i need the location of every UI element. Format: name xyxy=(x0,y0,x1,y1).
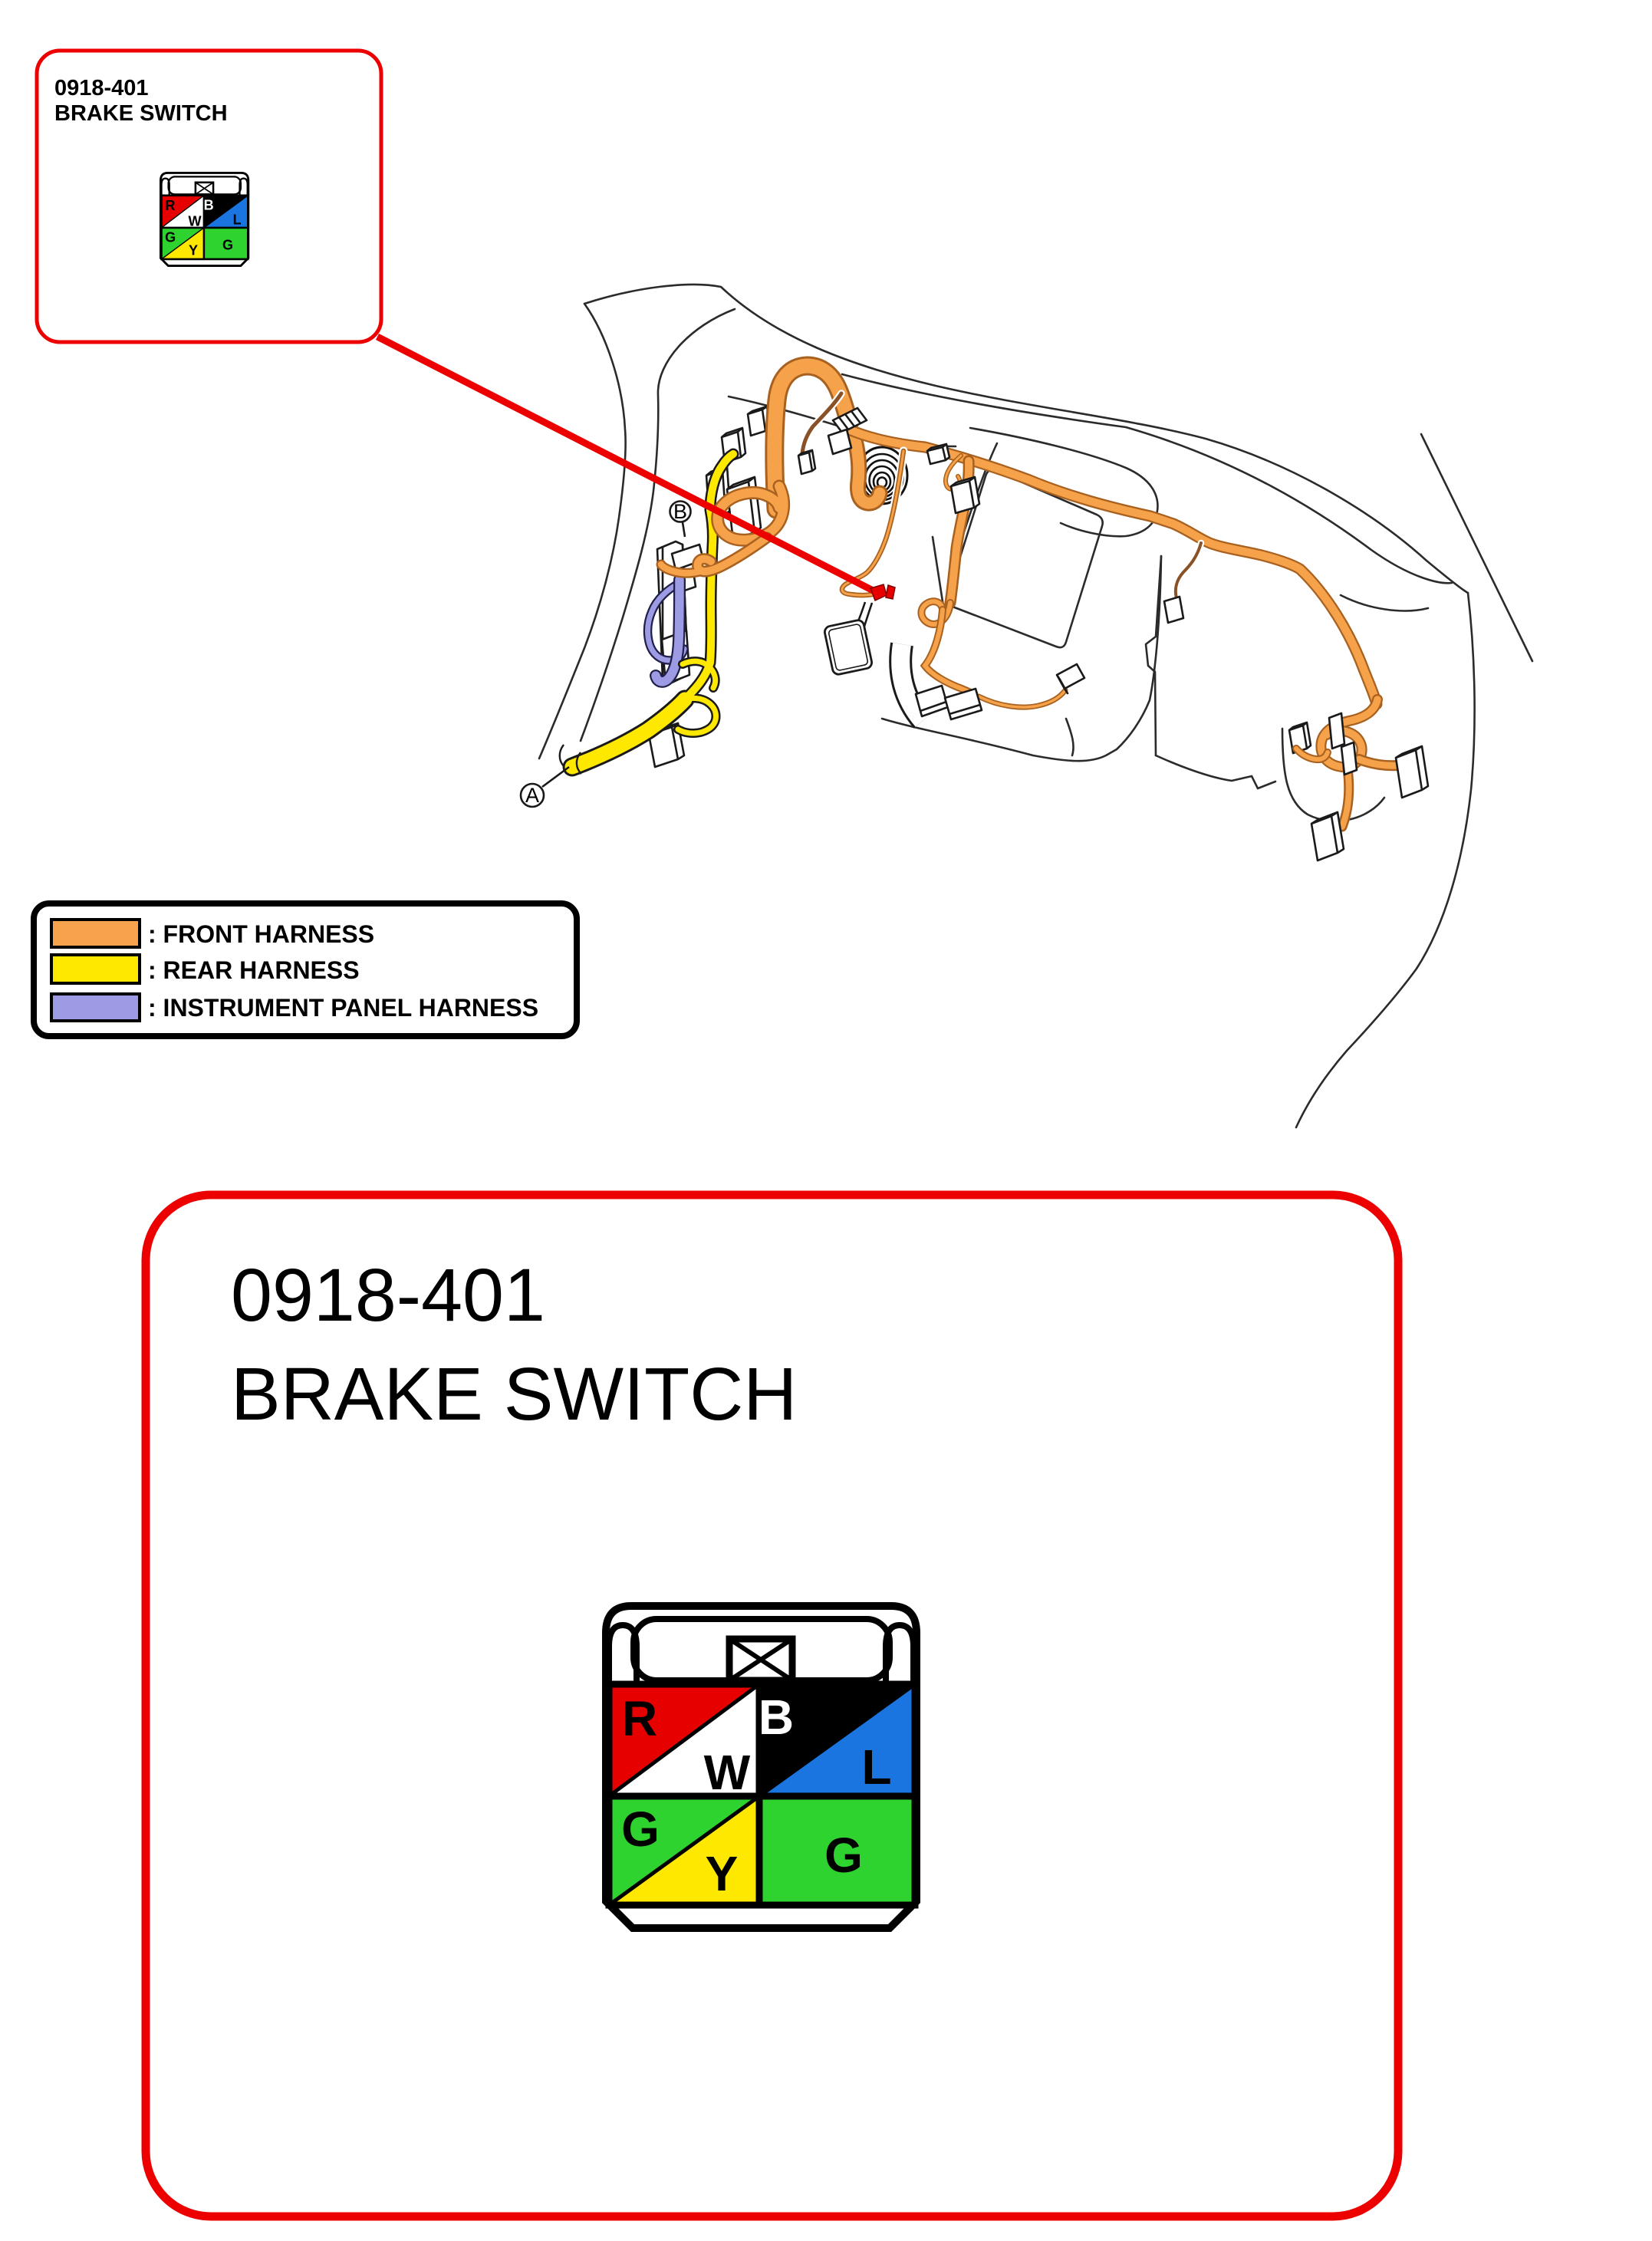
svg-text:B: B xyxy=(673,500,687,523)
svg-text:A: A xyxy=(525,784,539,807)
svg-text:BRAKE SWITCH: BRAKE SWITCH xyxy=(231,1352,797,1436)
svg-text:: REAR HARNESS: : REAR HARNESS xyxy=(148,956,360,984)
svg-text:: FRONT HARNESS: : FRONT HARNESS xyxy=(148,920,374,948)
svg-text:BRAKE SWITCH: BRAKE SWITCH xyxy=(54,101,228,126)
svg-text:0918-401: 0918-401 xyxy=(54,76,149,100)
svg-text:: INSTRUMENT PANEL HARNESS: : INSTRUMENT PANEL HARNESS xyxy=(148,994,538,1022)
svg-text:0918-401: 0918-401 xyxy=(231,1253,545,1337)
